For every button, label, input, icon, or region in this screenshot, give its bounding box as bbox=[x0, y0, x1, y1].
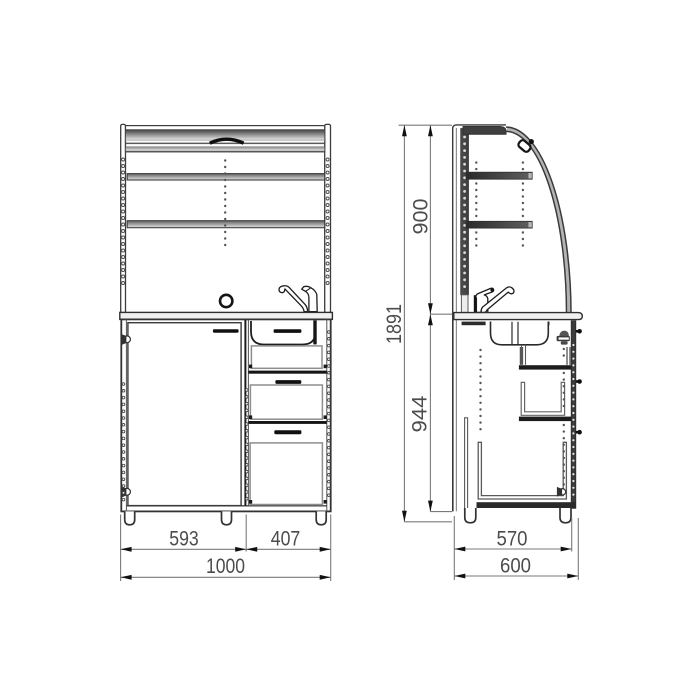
svg-text:407: 407 bbox=[271, 528, 301, 551]
svg-text:600: 600 bbox=[500, 554, 531, 577]
svg-text:900: 900 bbox=[410, 199, 433, 235]
svg-text:570: 570 bbox=[497, 528, 528, 551]
svg-text:593: 593 bbox=[169, 528, 199, 551]
svg-text:1891: 1891 bbox=[383, 304, 406, 344]
svg-text:1000: 1000 bbox=[206, 555, 245, 578]
svg-text:944: 944 bbox=[409, 395, 432, 432]
